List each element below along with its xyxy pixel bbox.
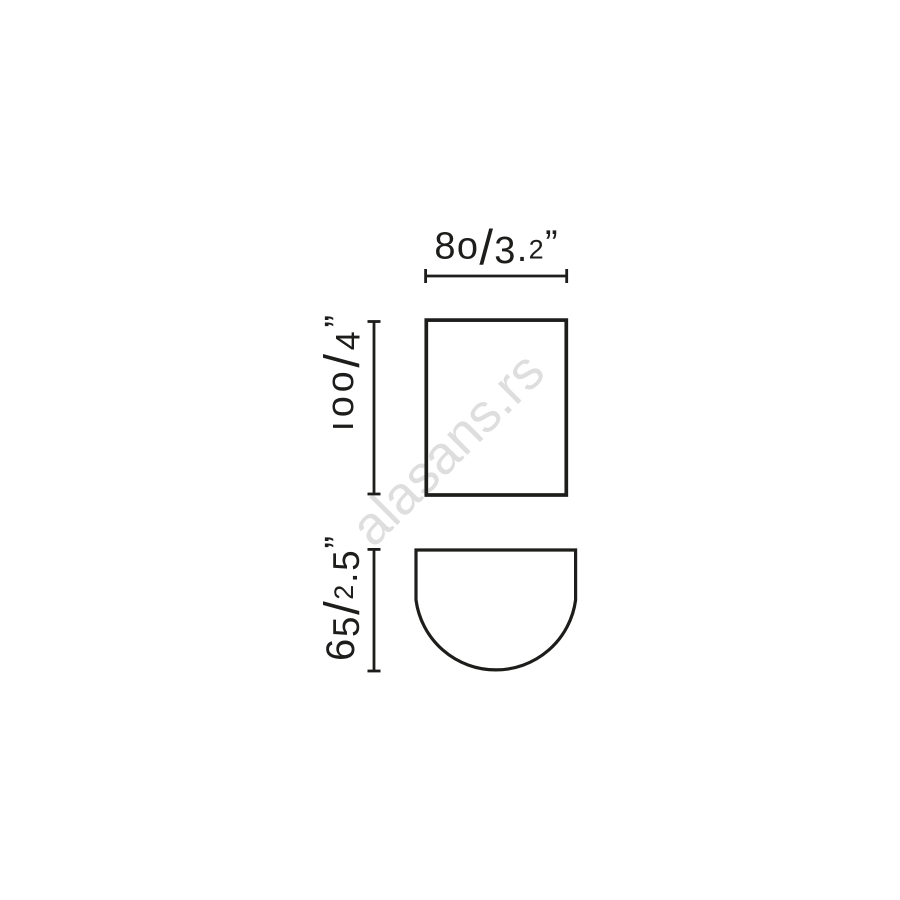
svg-text:65/2.5”: 65/2.5” xyxy=(316,535,370,661)
svg-text:alasans.rs: alasans.rs xyxy=(339,341,555,557)
svg-text:ıoo/4”: ıoo/4” xyxy=(316,314,370,432)
svg-text:8o/3.2”: 8o/3.2” xyxy=(434,221,558,275)
